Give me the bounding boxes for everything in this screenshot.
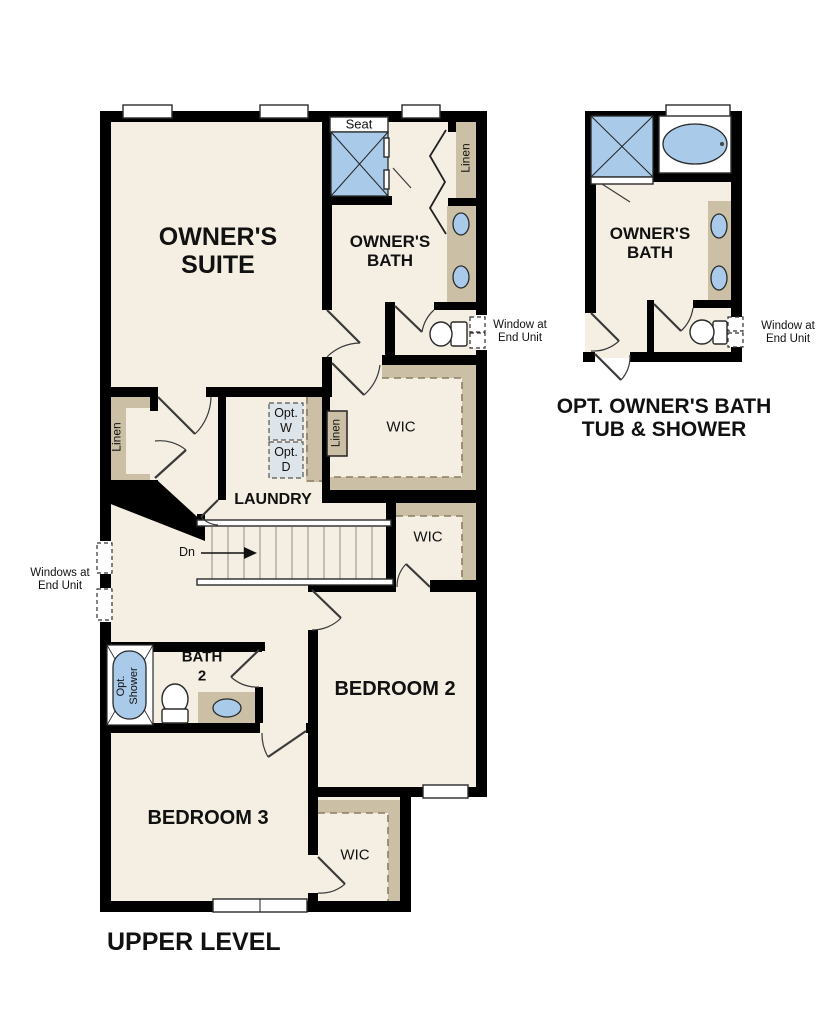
seat-label: Seat [346, 118, 373, 133]
stairs-dn-label: Dn [179, 545, 195, 559]
floor-plan-page: Seat OWNER'SSUITE OWNER'SBATH Linen Wind… [0, 0, 829, 1026]
sink [711, 214, 727, 238]
wic-owners-label: WIC [386, 420, 415, 437]
opt-bath-toilet [713, 321, 727, 344]
opt-end-unit-window-1 [728, 317, 743, 331]
wic3-shelf-top [318, 800, 400, 813]
opt-owners-bath-label: OWNER'SBATH [610, 224, 691, 262]
owners-bath-label: OWNER'SBATH [350, 232, 431, 270]
linen-wic-label: Linen [331, 419, 344, 447]
opt-shower-label: Opt.Shower [115, 667, 141, 704]
owners-suite-label: OWNER'SSUITE [159, 223, 277, 279]
laundry-shelf [306, 397, 322, 482]
end-unit-window-left-2 [97, 589, 112, 620]
sink [453, 213, 469, 235]
windows-end-unit-left-label: Windows atEnd Unit [30, 567, 89, 593]
window-suite-2 [260, 105, 308, 118]
bath2-sink [213, 699, 241, 717]
sink [711, 266, 727, 290]
window-suite-1 [123, 105, 172, 118]
wic2-shelf-right [462, 503, 476, 580]
plan-title: UPPER LEVEL [107, 928, 281, 956]
sink [453, 266, 469, 288]
end-unit-window-left-1 [97, 543, 112, 573]
opt-washer-label: Opt.W [274, 406, 298, 436]
bedroom3-label: BEDROOM 3 [147, 807, 268, 829]
wic-shelf-right [462, 365, 476, 490]
end-unit-window-right-2 [470, 333, 485, 348]
bedroom2-label: BEDROOM 2 [334, 678, 455, 700]
opt-bath-title: OPT. OWNER'S BATHTUB & SHOWER [557, 395, 772, 441]
floor-plan-drawing [0, 0, 829, 1026]
laundry-label: LAUNDRY [234, 491, 312, 509]
wic-shelf-top [382, 365, 476, 378]
opt-window-end-unit-label: Window atEnd Unit [761, 320, 815, 346]
window-bath-top [402, 105, 440, 118]
wic-shelf-bottom [330, 477, 476, 490]
opt-dryer-label: Opt.D [274, 445, 298, 475]
bath2-label: BATH2 [182, 648, 223, 686]
wic2-label: WIC [413, 530, 442, 547]
end-unit-window-right-1 [470, 317, 485, 332]
owners-toilet [430, 322, 467, 346]
window-bedroom2 [423, 785, 468, 798]
window-end-unit-right-label: Window atEnd Unit [493, 319, 547, 345]
wic3-label: WIC [340, 848, 369, 865]
linen-top-label: Linen [459, 143, 472, 172]
linen-hall-label: Linen [110, 422, 123, 451]
opt-end-unit-window-2 [728, 333, 743, 347]
wic3-shelf-right [388, 800, 400, 901]
